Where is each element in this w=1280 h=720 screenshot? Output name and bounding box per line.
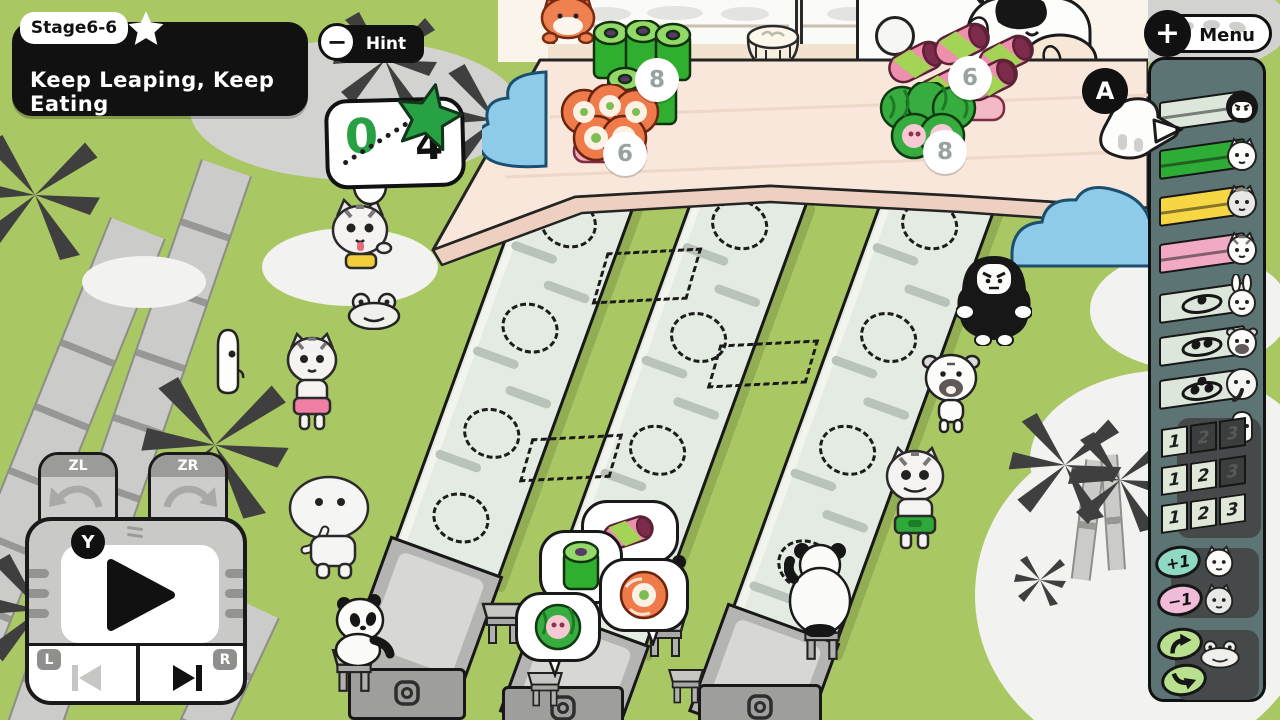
belt-tick [672, 396, 720, 421]
belt-slot-circle[interactable] [853, 304, 925, 371]
counter-emblem-icon [393, 679, 421, 707]
belt-tick [903, 283, 951, 308]
counter-cell: 3 [1219, 417, 1246, 450]
zr-label: ZR [151, 455, 225, 477]
cat-stripe [225, 609, 247, 618]
belt-placement-slot[interactable] [519, 434, 623, 483]
counter-cell: 3 [1219, 493, 1246, 526]
queue-count-badge: 6 [603, 132, 647, 176]
gray-cat-face-icon [1201, 582, 1237, 618]
salmon-roll-icon [618, 569, 670, 621]
three-plate-icon [1180, 374, 1224, 404]
counter-base [698, 684, 822, 720]
pug-character [920, 350, 982, 434]
belt-placement-slot[interactable] [592, 248, 703, 305]
gorilla-face-icon [1223, 88, 1261, 126]
cat-stripe [25, 609, 49, 618]
rabbit-face-icon [1223, 274, 1261, 320]
down-arrow-icon [1167, 666, 1201, 695]
belt-tick [543, 280, 591, 305]
a-button-badge[interactable]: A [1082, 68, 1128, 114]
belt-slot-circle[interactable] [622, 417, 694, 484]
counter-emblem-icon [746, 693, 774, 720]
redo-arrow-icon [151, 477, 225, 517]
belt-tick [640, 355, 688, 380]
cat-stripe [225, 589, 247, 598]
belt-slot-circle[interactable] [494, 295, 566, 362]
belt-tick [713, 283, 761, 308]
queue-count-badge: 8 [923, 130, 967, 174]
game-screen: 8 6 6 8 [0, 0, 1280, 720]
counter-cell: 2 [1190, 497, 1217, 530]
frog-character [346, 292, 402, 330]
white-cat-face-icon [1223, 136, 1261, 174]
step-forward-button[interactable] [167, 663, 207, 693]
belt-tick [862, 396, 910, 421]
goal-star-icon [390, 76, 468, 154]
undo-arrow-icon [41, 477, 115, 517]
r-button-badge: R [213, 649, 237, 670]
tiger-cat-pink-character [280, 332, 344, 434]
pug-face-icon [1223, 323, 1261, 361]
cucumber-roll-icon [560, 541, 602, 593]
stage-number-badge: Stage6-6 [20, 12, 128, 44]
panda-character-right [784, 541, 856, 637]
play-button[interactable] [61, 545, 219, 643]
counter-cell: 2 [1190, 459, 1217, 492]
elephant-character [281, 472, 371, 582]
up-arrow-icon [1163, 630, 1197, 659]
counter-cell: 1 [1161, 425, 1188, 458]
play-icon [103, 557, 179, 633]
belt-tick [472, 345, 520, 370]
belt-tick [789, 467, 837, 492]
gorilla-character [956, 248, 1032, 346]
elephant-face-icon [1223, 366, 1261, 404]
ghost-character [211, 326, 245, 396]
palm-bush-icon [1005, 550, 1075, 610]
one-plate-icon [1180, 289, 1224, 317]
counter-cell: 1 [1161, 501, 1188, 534]
belt-slot-circle[interactable] [425, 485, 497, 552]
cat-stripe [25, 589, 49, 598]
step-back-button[interactable] [67, 663, 107, 693]
panda-character-left [330, 594, 396, 666]
belt-tick [504, 385, 552, 410]
y-button-badge: Y [71, 525, 105, 559]
belt-tick [830, 355, 878, 380]
divider [136, 643, 140, 701]
l-button-badge: L [37, 649, 61, 670]
blue-cloud-decoration [482, 70, 548, 172]
playback-panel: Y L R [25, 517, 247, 705]
frog-face-icon [1199, 638, 1241, 670]
stage-title: Keep Leaping, Keep Eating [30, 68, 300, 116]
cat-stripe [25, 569, 49, 578]
cloud-white [82, 256, 206, 308]
queue-count-badge: 8 [635, 58, 679, 102]
belt-slot-circle[interactable] [456, 400, 528, 467]
minus-button-icon[interactable]: − [318, 23, 356, 61]
order-bubble-salmon [599, 558, 689, 632]
plus-button-icon[interactable]: + [1144, 10, 1191, 57]
bamboo-leaves-icon [0, 120, 110, 270]
tiger-cat-yellow-character [322, 198, 398, 278]
menu-button-label: Menu [1199, 25, 1255, 46]
star-icon [128, 10, 164, 46]
zl-label: ZL [41, 455, 115, 477]
queue-count-badge: 6 [948, 56, 992, 100]
cat-forehead-mark-icon [127, 533, 143, 538]
tiger-cat-face-icon [1223, 230, 1261, 268]
cat-forehead-mark-icon [127, 526, 143, 531]
order-bubble-melon [515, 592, 601, 662]
belt-slot-circle[interactable] [812, 417, 884, 484]
belt-placement-slot[interactable] [707, 339, 819, 388]
counter-cell: 2 [1190, 421, 1217, 454]
belt-tick [821, 509, 869, 534]
two-plate-icon [1180, 332, 1224, 360]
stool [666, 658, 706, 712]
tiger-cat-green-character [876, 446, 954, 552]
gray-cat-face-icon [1223, 183, 1261, 221]
stage-info-panel: Stage6-6 Keep Leaping, Keep Eating [12, 22, 308, 116]
white-cat-face-icon [1201, 544, 1237, 580]
counter-cell: 1 [1161, 463, 1188, 496]
cat-stripe [225, 569, 247, 578]
melon-roll-icon [533, 602, 583, 652]
counter-cell: 3 [1219, 455, 1246, 488]
